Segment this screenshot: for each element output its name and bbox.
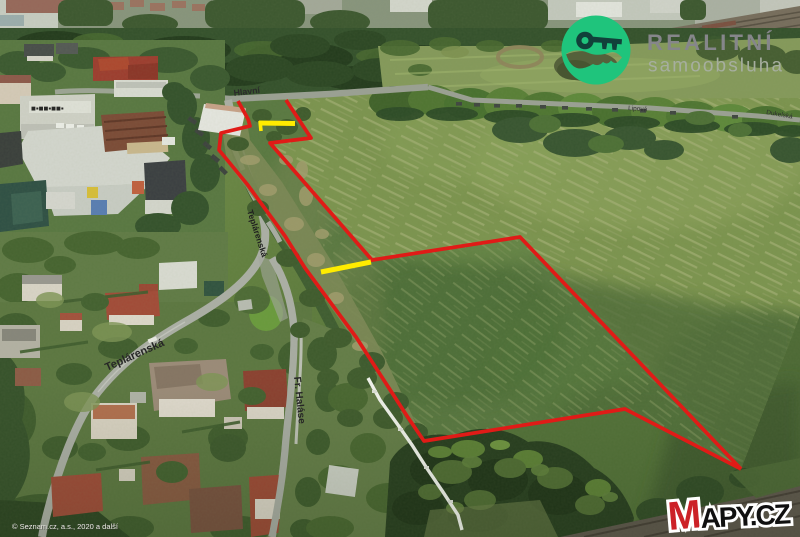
svg-text:M: M <box>666 492 703 537</box>
svg-text:© Seznam.cz, a.s., 2020 a dalš: © Seznam.cz, a.s., 2020 a další <box>12 522 119 531</box>
svg-text:samoobsluha: samoobsluha <box>648 56 784 77</box>
svg-text:REALITNÍ: REALITNÍ <box>647 30 775 55</box>
svg-text:APY.CZ: APY.CZ <box>700 498 792 534</box>
svg-text:Lipová: Lipová <box>628 105 648 113</box>
